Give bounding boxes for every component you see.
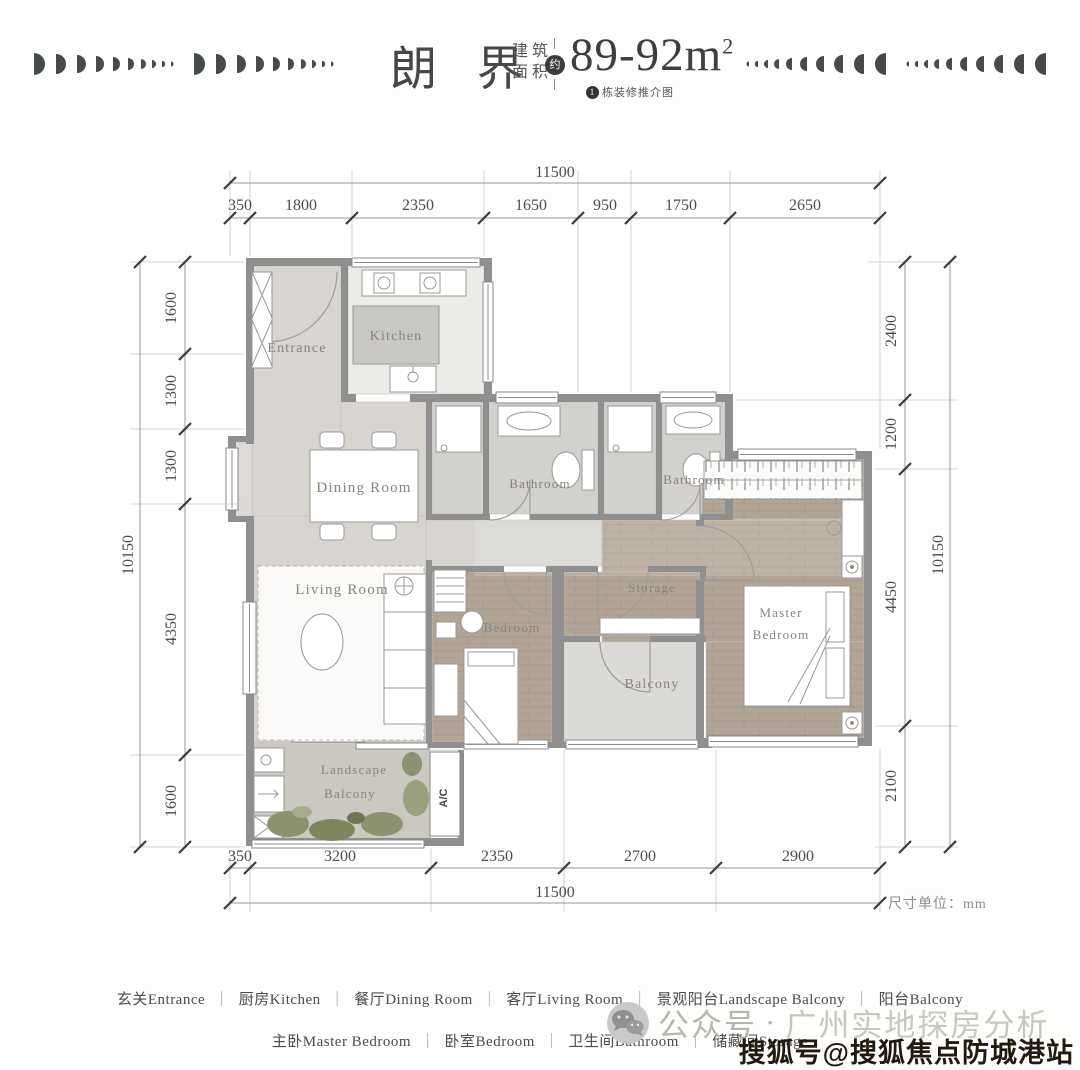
legend-item: 主卧Master Bedroom [272,1034,411,1050]
area-value: 89-92m2 [570,28,734,82]
header-sub-note: 1 栋装修推介图 [586,84,674,100]
dim-bottom-2: 2350 [481,848,513,865]
dim-bottom-total: 11500 [535,884,574,901]
dim-bottom-1: 3200 [324,848,356,865]
legend-item: 卧室Bedroom [445,1034,535,1050]
room-label-landscape-2: Balcony [324,786,376,801]
dim-bottom-0: 350 [228,848,252,865]
dim-top-5: 1750 [665,197,697,214]
decorative-crescents-left [22,44,372,84]
note-number-badge: 1 [586,86,599,99]
legend-separator: ｜ [321,992,355,1008]
dim-right-1: 1200 [883,418,900,450]
dim-bottom-3: 2700 [624,848,656,865]
room-label-master-1: Master [759,605,802,620]
dim-top-6: 2650 [789,197,821,214]
dim-left-3: 4350 [163,613,180,645]
room-label-balcony: Balcony [624,677,679,692]
dim-bottom-4: 2900 [782,848,814,865]
window-living-left [243,602,256,694]
room-label-bathroom2: Bathroom [663,472,725,487]
window-landscape-bottom [252,840,424,848]
dim-left-1: 1300 [163,375,180,407]
window-bay [226,448,238,510]
room-label-kitchen: Kitchen [370,329,423,344]
dim-left-0: 1600 [163,292,180,324]
window-corridor-top [738,449,856,460]
window-kitchen-right [483,282,493,382]
dim-top-0: 350 [228,197,252,214]
area-number: 89-92m [570,29,722,81]
dim-right-0: 2400 [883,315,900,347]
dim-left-total: 10150 [120,535,137,575]
room-label-dining: Dining Room [316,480,411,496]
dim-right-2: 4450 [883,581,900,613]
window-bathroom2-top [660,392,716,403]
room-label-bathroom1: Bathroom [509,476,571,491]
sohu-watermark: 搜狐号@搜狐焦点防城港站 [739,1031,1074,1070]
floorplan-page: Entrance Kitchen Dining Room Bathroom Ba… [0,0,1080,1070]
dim-left-2: 1300 [163,450,180,482]
approx-badge: 约 [545,55,565,75]
floor-plan-drawing: Entrance Kitchen Dining Room Bathroom Ba… [0,0,1080,1070]
divider-tick-top [554,38,555,49]
legend-separator: ｜ [411,1034,445,1050]
dim-top-3: 1650 [515,197,547,214]
dim-top-total: 11500 [535,164,574,181]
kitchen-sink [390,366,436,392]
window-master-bottom [708,736,858,747]
area-superscript: 2 [722,33,734,58]
wechat-icon [606,1001,650,1045]
legend-separator: ｜ [473,992,507,1008]
legend-item: 厨房Kitchen [239,992,321,1008]
divider-tick-bottom [554,79,555,90]
dim-top-2: 2350 [402,197,434,214]
kitchen-stove [362,270,466,296]
room-label-landscape-1: Landscape [321,762,387,777]
dim-right-3: 2100 [883,770,900,802]
dim-top-4: 950 [593,197,617,214]
storage-cabinet [600,618,700,634]
dim-top-1: 1800 [285,197,317,214]
legend-separator: ｜ [535,1034,569,1050]
dim-right-total: 10150 [930,535,947,575]
decorative-crescents-right [708,44,1058,84]
room-label-living: Living Room [295,582,389,598]
legend-separator: ｜ [205,992,239,1008]
room-label-master-2: Bedroom [753,627,810,642]
window-balcony-bottom [566,740,698,749]
window-kitchen-top [352,258,480,267]
room-label-entrance: Entrance [267,341,326,356]
window-bathroom1-top [496,392,558,403]
dim-left-4: 1600 [163,785,180,817]
dimension-unit-note: 尺寸单位：mm [888,896,987,912]
note-text: 栋装修推介图 [602,84,674,100]
room-label-ac: A/C [438,788,450,807]
room-label-bedroom: Bedroom [484,620,541,635]
legend-item: 玄关Entrance [117,992,205,1008]
legend-item: 餐厅Dining Room [354,992,473,1008]
room-label-storage: Storage [628,580,676,595]
